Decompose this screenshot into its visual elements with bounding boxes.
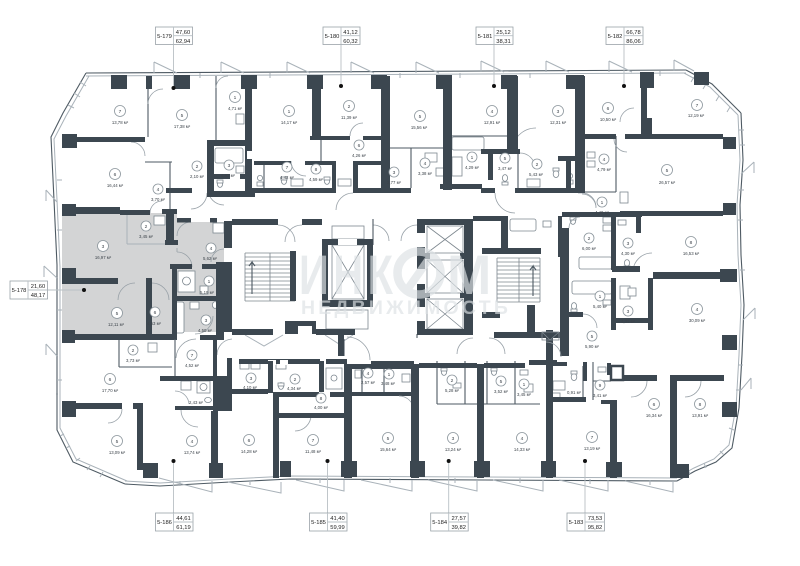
svg-text:2: 2 <box>145 224 148 230</box>
svg-text:8: 8 <box>320 396 323 402</box>
svg-text:5-184: 5-184 <box>432 520 448 526</box>
svg-text:2: 2 <box>536 162 539 168</box>
svg-text:5-186: 5-186 <box>157 520 172 526</box>
svg-text:7: 7 <box>191 353 194 359</box>
svg-text:2: 2 <box>294 377 297 383</box>
svg-text:15,64 м²: 15,64 м² <box>380 447 397 452</box>
svg-text:17,38 м²: 17,38 м² <box>174 124 191 129</box>
svg-text:4,30 м²: 4,30 м² <box>621 251 636 256</box>
svg-text:11,48 м²: 11,48 м² <box>305 449 322 454</box>
svg-text:6: 6 <box>358 143 361 149</box>
svg-text:47,60: 47,60 <box>176 30 191 36</box>
svg-text:5,62 м²: 5,62 м² <box>203 256 218 261</box>
svg-text:4,29 м²: 4,29 м² <box>465 165 480 170</box>
svg-text:5: 5 <box>504 156 507 162</box>
svg-text:13,24 м²: 13,24 м² <box>445 447 462 452</box>
svg-text:3,47 м²: 3,47 м² <box>498 166 513 171</box>
svg-text:5: 5 <box>419 114 422 120</box>
svg-text:5: 5 <box>116 439 119 445</box>
svg-text:59,99: 59,99 <box>330 525 345 531</box>
svg-text:5,90 м²: 5,90 м² <box>585 344 600 349</box>
svg-text:86,06: 86,06 <box>626 39 641 45</box>
svg-text:3: 3 <box>452 436 455 442</box>
svg-text:4,26 м²: 4,26 м² <box>352 153 367 158</box>
svg-text:62,94: 62,94 <box>176 39 191 45</box>
svg-text:3,38 м²: 3,38 м² <box>418 171 433 176</box>
svg-text:3,41 м²: 3,41 м² <box>593 393 608 398</box>
svg-text:4: 4 <box>157 187 160 193</box>
svg-text:48,17: 48,17 <box>31 293 46 299</box>
svg-text:41,40: 41,40 <box>330 516 345 522</box>
svg-text:3: 3 <box>228 163 231 169</box>
svg-text:4,71 м²: 4,71 м² <box>228 106 243 111</box>
svg-text:4,52 м²: 4,52 м² <box>185 363 200 368</box>
svg-text:12,31 м²: 12,31 м² <box>550 120 567 125</box>
svg-text:10,50 м²: 10,50 м² <box>600 117 617 122</box>
svg-text:4: 4 <box>210 246 213 252</box>
svg-text:5,28 м²: 5,28 м² <box>445 388 460 393</box>
svg-text:1: 1 <box>601 200 604 206</box>
svg-text:1: 1 <box>471 155 474 161</box>
svg-text:5-179: 5-179 <box>157 34 172 40</box>
svg-text:1: 1 <box>234 95 237 101</box>
svg-text:6: 6 <box>109 377 112 383</box>
svg-text:5: 5 <box>666 168 669 174</box>
svg-text:6: 6 <box>154 310 157 316</box>
svg-text:13,74 м²: 13,74 м² <box>184 450 201 455</box>
svg-text:3: 3 <box>627 241 630 247</box>
svg-text:4,34 м²: 4,34 м² <box>287 386 302 391</box>
svg-text:2: 2 <box>451 378 454 384</box>
svg-text:9: 9 <box>599 383 602 389</box>
svg-text:3,73 м²: 3,73 м² <box>126 358 141 363</box>
svg-text:0,91 м²: 0,91 м² <box>567 390 582 395</box>
svg-text:4,42 м²: 4,42 м² <box>280 175 295 180</box>
svg-text:3: 3 <box>627 309 630 315</box>
svg-text:4,50 м²: 4,50 м² <box>198 328 213 333</box>
svg-text:6: 6 <box>607 106 610 112</box>
svg-text:7: 7 <box>591 435 594 441</box>
svg-text:2: 2 <box>196 164 199 170</box>
svg-text:4,83 м²: 4,83 м² <box>221 173 236 178</box>
svg-text:95,82: 95,82 <box>588 525 603 531</box>
svg-text:14,28 м²: 14,28 м² <box>241 449 258 454</box>
svg-text:3,48 м²: 3,48 м² <box>381 381 396 386</box>
svg-text:3,45 м²: 3,45 м² <box>139 234 154 239</box>
svg-text:7: 7 <box>119 109 122 115</box>
svg-text:4: 4 <box>191 439 194 445</box>
svg-text:5: 5 <box>116 311 119 317</box>
svg-text:5,40 м²: 5,40 м² <box>593 304 608 309</box>
svg-text:60,32: 60,32 <box>343 39 358 45</box>
svg-text:5: 5 <box>181 113 184 119</box>
svg-text:3: 3 <box>393 170 396 176</box>
svg-text:8: 8 <box>690 240 693 246</box>
svg-text:7: 7 <box>696 103 699 109</box>
svg-text:НЕДВИЖИМОСТЬ: НЕДВИЖИМОСТЬ <box>301 297 511 319</box>
svg-text:27,57: 27,57 <box>451 516 466 522</box>
svg-text:2: 2 <box>132 348 135 354</box>
svg-text:4,10 м²: 4,10 м² <box>243 385 258 390</box>
svg-text:8: 8 <box>315 167 318 173</box>
svg-text:16,34 м²: 16,34 м² <box>646 413 663 418</box>
svg-text:41,12: 41,12 <box>343 30 358 36</box>
svg-text:4: 4 <box>367 371 370 377</box>
svg-text:3: 3 <box>205 318 208 324</box>
svg-text:3: 3 <box>250 376 253 382</box>
svg-text:3,52 м²: 3,52 м² <box>494 389 509 394</box>
svg-text:5-181: 5-181 <box>478 34 493 40</box>
svg-text:4,79 м²: 4,79 м² <box>597 167 612 172</box>
svg-text:6: 6 <box>114 172 117 178</box>
svg-text:5-185: 5-185 <box>311 520 326 526</box>
svg-text:12,11 м²: 12,11 м² <box>108 322 125 327</box>
svg-text:13,91 м²: 13,91 м² <box>692 413 709 418</box>
svg-text:5-183: 5-183 <box>569 520 584 526</box>
svg-text:2: 2 <box>348 104 351 110</box>
svg-text:16,97 м²: 16,97 м² <box>95 255 112 260</box>
svg-text:1: 1 <box>288 109 291 115</box>
svg-text:4,40 м²: 4,40 м² <box>595 210 610 215</box>
svg-text:26,57 м²: 26,57 м² <box>659 180 676 185</box>
svg-text:3: 3 <box>102 244 105 250</box>
svg-text:13,09 м²: 13,09 м² <box>109 450 126 455</box>
svg-text:3,45 м²: 3,45 м² <box>517 392 532 397</box>
svg-text:2,43 м²: 2,43 м² <box>189 400 204 405</box>
svg-text:4: 4 <box>424 161 427 167</box>
svg-text:66,78: 66,78 <box>626 30 641 36</box>
svg-text:16,44 м²: 16,44 м² <box>107 183 124 188</box>
svg-text:5: 5 <box>500 379 503 385</box>
svg-text:14,33 м²: 14,33 м² <box>514 447 531 452</box>
svg-text:2,10 м²: 2,10 м² <box>190 174 205 179</box>
svg-text:38,31: 38,31 <box>496 39 511 45</box>
svg-text:8: 8 <box>699 402 702 408</box>
svg-text:5-182: 5-182 <box>608 34 623 40</box>
svg-text:3,70 м²: 3,70 м² <box>151 197 166 202</box>
svg-text:2: 2 <box>588 236 591 242</box>
svg-text:14,17 м²: 14,17 м² <box>281 120 298 125</box>
svg-text:4,59 м²: 4,59 м² <box>309 177 324 182</box>
svg-text:1: 1 <box>523 382 526 388</box>
svg-text:3: 3 <box>557 109 560 115</box>
svg-text:73,53: 73,53 <box>588 516 603 522</box>
svg-text:4: 4 <box>521 436 524 442</box>
svg-text:44,61: 44,61 <box>176 516 191 522</box>
svg-text:1: 1 <box>208 279 211 285</box>
svg-text:4,31 м²: 4,31 м² <box>621 319 636 324</box>
svg-text:6,00 м²: 6,00 м² <box>582 246 597 251</box>
svg-text:13,78 м²: 13,78 м² <box>112 120 129 125</box>
svg-text:11,39 м²: 11,39 м² <box>341 115 358 120</box>
svg-text:21,60: 21,60 <box>31 284 46 290</box>
svg-text:1: 1 <box>599 294 602 300</box>
svg-text:4,00 м²: 4,00 м² <box>314 405 329 410</box>
svg-text:13,19 м²: 13,19 м² <box>584 446 601 451</box>
svg-text:4: 4 <box>603 157 606 163</box>
svg-text:16,53 м²: 16,53 м² <box>683 251 700 256</box>
svg-text:17,70 м²: 17,70 м² <box>102 388 119 393</box>
svg-text:61,19: 61,19 <box>176 525 191 531</box>
svg-text:6: 6 <box>248 438 251 444</box>
svg-text:5: 5 <box>591 334 594 340</box>
svg-text:4,63 м²: 4,63 м² <box>147 321 162 326</box>
svg-text:5-178: 5-178 <box>12 288 27 294</box>
svg-text:7: 7 <box>312 438 315 444</box>
svg-text:1: 1 <box>388 372 391 378</box>
svg-text:7: 7 <box>286 165 289 171</box>
svg-text:5-180: 5-180 <box>325 34 340 40</box>
svg-text:5,43 м²: 5,43 м² <box>529 172 544 177</box>
svg-text:5,19 м²: 5,19 м² <box>200 290 215 295</box>
svg-text:25,12: 25,12 <box>496 30 511 36</box>
svg-text:5: 5 <box>387 436 390 442</box>
svg-text:6: 6 <box>653 402 656 408</box>
svg-text:39,82: 39,82 <box>451 525 466 531</box>
svg-text:30,09 м²: 30,09 м² <box>689 318 706 323</box>
svg-text:4: 4 <box>491 109 494 115</box>
svg-text:2,57 м²: 2,57 м² <box>361 380 376 385</box>
svg-text:15,56 м²: 15,56 м² <box>411 125 428 130</box>
svg-text:4: 4 <box>696 307 699 313</box>
svg-text:12,19 м²: 12,19 м² <box>688 113 705 118</box>
svg-text:2,77 м²: 2,77 м² <box>387 180 402 185</box>
svg-text:12,91 м²: 12,91 м² <box>484 120 501 125</box>
